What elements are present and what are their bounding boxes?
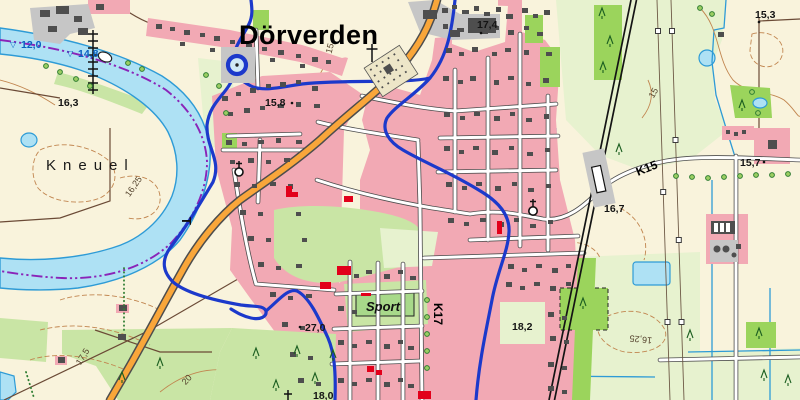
spot-height-label: 27,0 xyxy=(305,322,326,334)
map-canvas[interactable]: Dörverden Kneuel Sport K15 K17 ▽ 12,0 ▽ … xyxy=(0,0,800,400)
spot-height-dot xyxy=(480,32,483,35)
spot-height-label: 18,2 xyxy=(512,321,533,333)
church-icon xyxy=(529,199,537,215)
spot-height-dot xyxy=(758,21,761,24)
spot-height-label: 17,4 xyxy=(477,19,498,31)
water-gauge-label: 14,8 xyxy=(78,48,99,60)
woodland-patch xyxy=(746,322,776,348)
church-icon xyxy=(235,161,243,176)
spot-height-dot xyxy=(291,102,294,105)
spot-height-label: 15,8 xyxy=(265,97,286,109)
road-label-k17: K17 xyxy=(431,303,445,325)
pond xyxy=(633,262,670,285)
settlement-patch xyxy=(88,0,130,14)
spot-height-label: 18,0 xyxy=(313,390,334,400)
sports-field-label: Sport xyxy=(366,299,401,314)
ferry-marker-label: T xyxy=(179,217,194,225)
meadow-southwest xyxy=(0,318,48,362)
place-label-kneuel: Kneuel xyxy=(46,157,135,174)
spot-height-dot xyxy=(299,326,302,329)
pond-kneuel xyxy=(21,133,37,147)
green-open xyxy=(380,228,438,268)
spot-height-label: 16,3 xyxy=(58,97,79,109)
water-gauge-label: 12,0 xyxy=(21,39,42,51)
spot-height-label: 15,3 xyxy=(755,9,776,21)
water-gauge-icon: ▽ xyxy=(67,49,74,58)
topographic-map: Dörverden Kneuel Sport K15 K17 ▽ 12,0 ▽ … xyxy=(0,0,800,400)
spot-height-label: 16,7 xyxy=(604,203,625,215)
place-label-doerverden: Dörverden xyxy=(239,20,379,50)
water-gauge-icon: ▽ xyxy=(10,40,17,49)
pond-small xyxy=(753,98,767,108)
water-tower-icon xyxy=(221,47,255,83)
spot-height-label: 15,7 xyxy=(740,157,761,169)
spot-height-dot xyxy=(763,161,766,164)
